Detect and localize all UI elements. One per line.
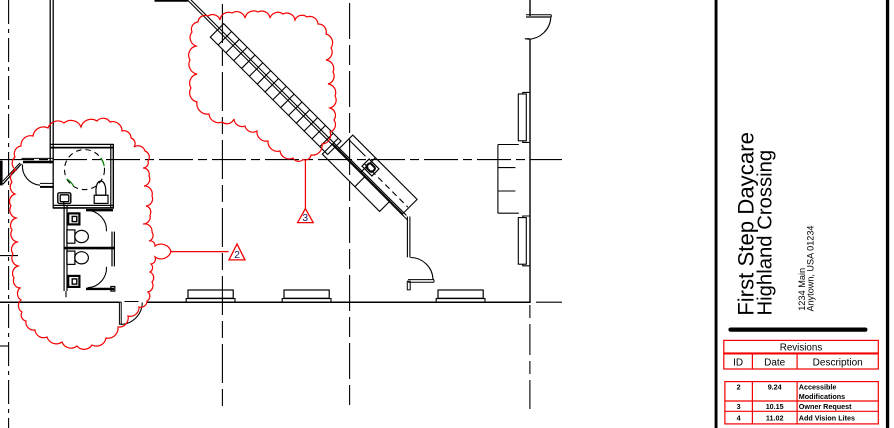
- svg-text:3: 3: [737, 402, 741, 411]
- svg-text:Modifications: Modifications: [799, 392, 845, 401]
- svg-text:10.15: 10.15: [766, 402, 784, 411]
- svg-text:ID: ID: [733, 357, 743, 368]
- svg-text:3: 3: [302, 212, 308, 224]
- svg-text:2: 2: [234, 249, 240, 261]
- svg-text:Anytown, USA 01234: Anytown, USA 01234: [805, 226, 815, 312]
- svg-text:Description: Description: [813, 357, 863, 368]
- svg-text:9.24: 9.24: [768, 383, 782, 392]
- svg-text:Revisions: Revisions: [780, 342, 823, 353]
- svg-text:Date: Date: [764, 357, 786, 368]
- svg-text:11.02: 11.02: [766, 414, 784, 423]
- svg-text:Highland Crossing: Highland Crossing: [754, 150, 776, 316]
- svg-text:4: 4: [737, 414, 741, 423]
- svg-text:Add Vision Lites: Add Vision Lites: [799, 414, 855, 423]
- svg-text:Accessible: Accessible: [799, 383, 837, 392]
- svg-text:Owner Request: Owner Request: [799, 402, 852, 411]
- svg-text:2: 2: [737, 383, 741, 392]
